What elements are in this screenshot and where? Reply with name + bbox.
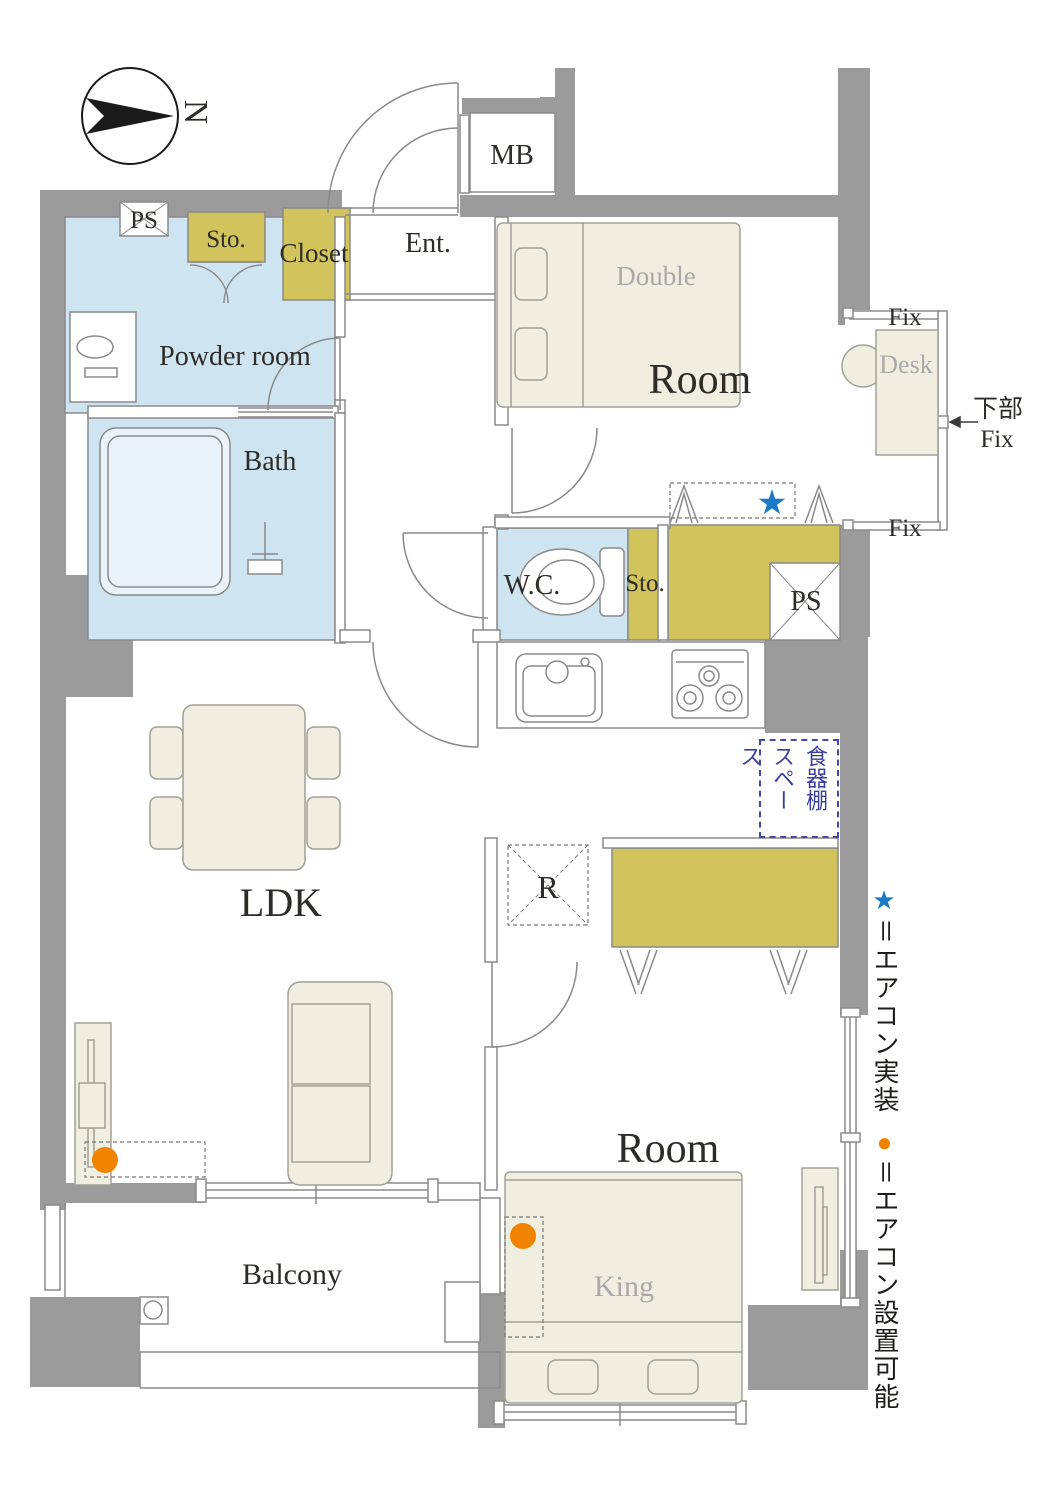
label-wc: W.C. <box>504 570 561 601</box>
entrance-door-arc-small <box>373 128 458 213</box>
dining-chair <box>150 727 183 779</box>
dining-table <box>183 705 305 870</box>
aircon-possible-dot-king <box>510 1223 536 1249</box>
label-fix-top: Fix <box>888 304 922 331</box>
compass-n: N <box>177 100 214 125</box>
label-sto-mid: Sto. <box>625 570 665 597</box>
label-mb: MB <box>490 140 534 171</box>
compass <box>82 68 178 164</box>
label-ps-right: PS <box>790 586 821 617</box>
closet-fold-door-1 <box>620 950 657 994</box>
closet-bottom-area <box>612 848 838 947</box>
compass-arrow <box>86 98 174 134</box>
legend-dot-text: ＝エアコン設置可能 <box>870 1159 899 1411</box>
room-bottom-door <box>492 962 577 1047</box>
label-desk: Desk <box>879 350 932 379</box>
legend-star-icon: ★ <box>870 886 899 918</box>
label-fridge: R <box>537 869 559 905</box>
room-top-door <box>512 428 597 513</box>
label-lower-fix-en: Fix <box>980 426 1014 453</box>
legend-aircon-installed: ★＝エアコン実装 <box>866 886 903 1114</box>
bathtub <box>100 428 230 595</box>
balcony-partition <box>45 1205 60 1290</box>
dining-chair <box>307 727 340 779</box>
label-powder-room: Powder room <box>159 341 311 372</box>
entrance-door-arc <box>328 83 458 213</box>
label-lower-fix-jp: 下部 <box>973 395 1023 423</box>
washbasin <box>70 312 136 402</box>
label-ps-top: PS <box>130 207 158 234</box>
balcony-drain <box>144 1301 162 1319</box>
closet-fold-door-2 <box>770 950 807 994</box>
label-closet: Closet <box>279 238 349 268</box>
floor-plan-page: N PS Sto. Closet Ent. MB Powder room Bat… <box>0 0 1061 1500</box>
sofa <box>288 982 392 1185</box>
label-fix-bottom: Fix <box>888 515 922 542</box>
label-room-bottom: Room <box>617 1126 720 1172</box>
label-king: King <box>594 1270 654 1303</box>
label-sto-top: Sto. <box>206 226 246 253</box>
label-ent: Ent. <box>405 228 451 259</box>
dining-table-set <box>150 705 340 870</box>
side-cabinet <box>802 1168 838 1290</box>
ldk-door <box>373 642 478 747</box>
label-ldk: LDK <box>240 880 322 925</box>
dish-shelf-space-note: 食器棚スペース <box>759 739 839 838</box>
label-double: Double <box>616 261 696 291</box>
kitchen-sink <box>516 654 602 722</box>
legend-aircon-possible: ●＝エアコン設置可能 <box>866 1128 903 1411</box>
stove <box>672 650 748 718</box>
hanger-pipe-2 <box>805 486 833 523</box>
legend-star-text: ＝エアコン実装 <box>870 918 899 1114</box>
wc-door <box>403 533 488 618</box>
dining-chair <box>150 797 183 849</box>
dining-chair <box>307 797 340 849</box>
label-balcony: Balcony <box>242 1258 342 1291</box>
label-bath: Bath <box>244 446 297 477</box>
legend-dot-icon: ● <box>870 1128 899 1159</box>
aircon-possible-dot-ldk <box>92 1147 118 1173</box>
label-room-top: Room <box>649 357 752 403</box>
aircon-installed-star <box>759 489 786 514</box>
